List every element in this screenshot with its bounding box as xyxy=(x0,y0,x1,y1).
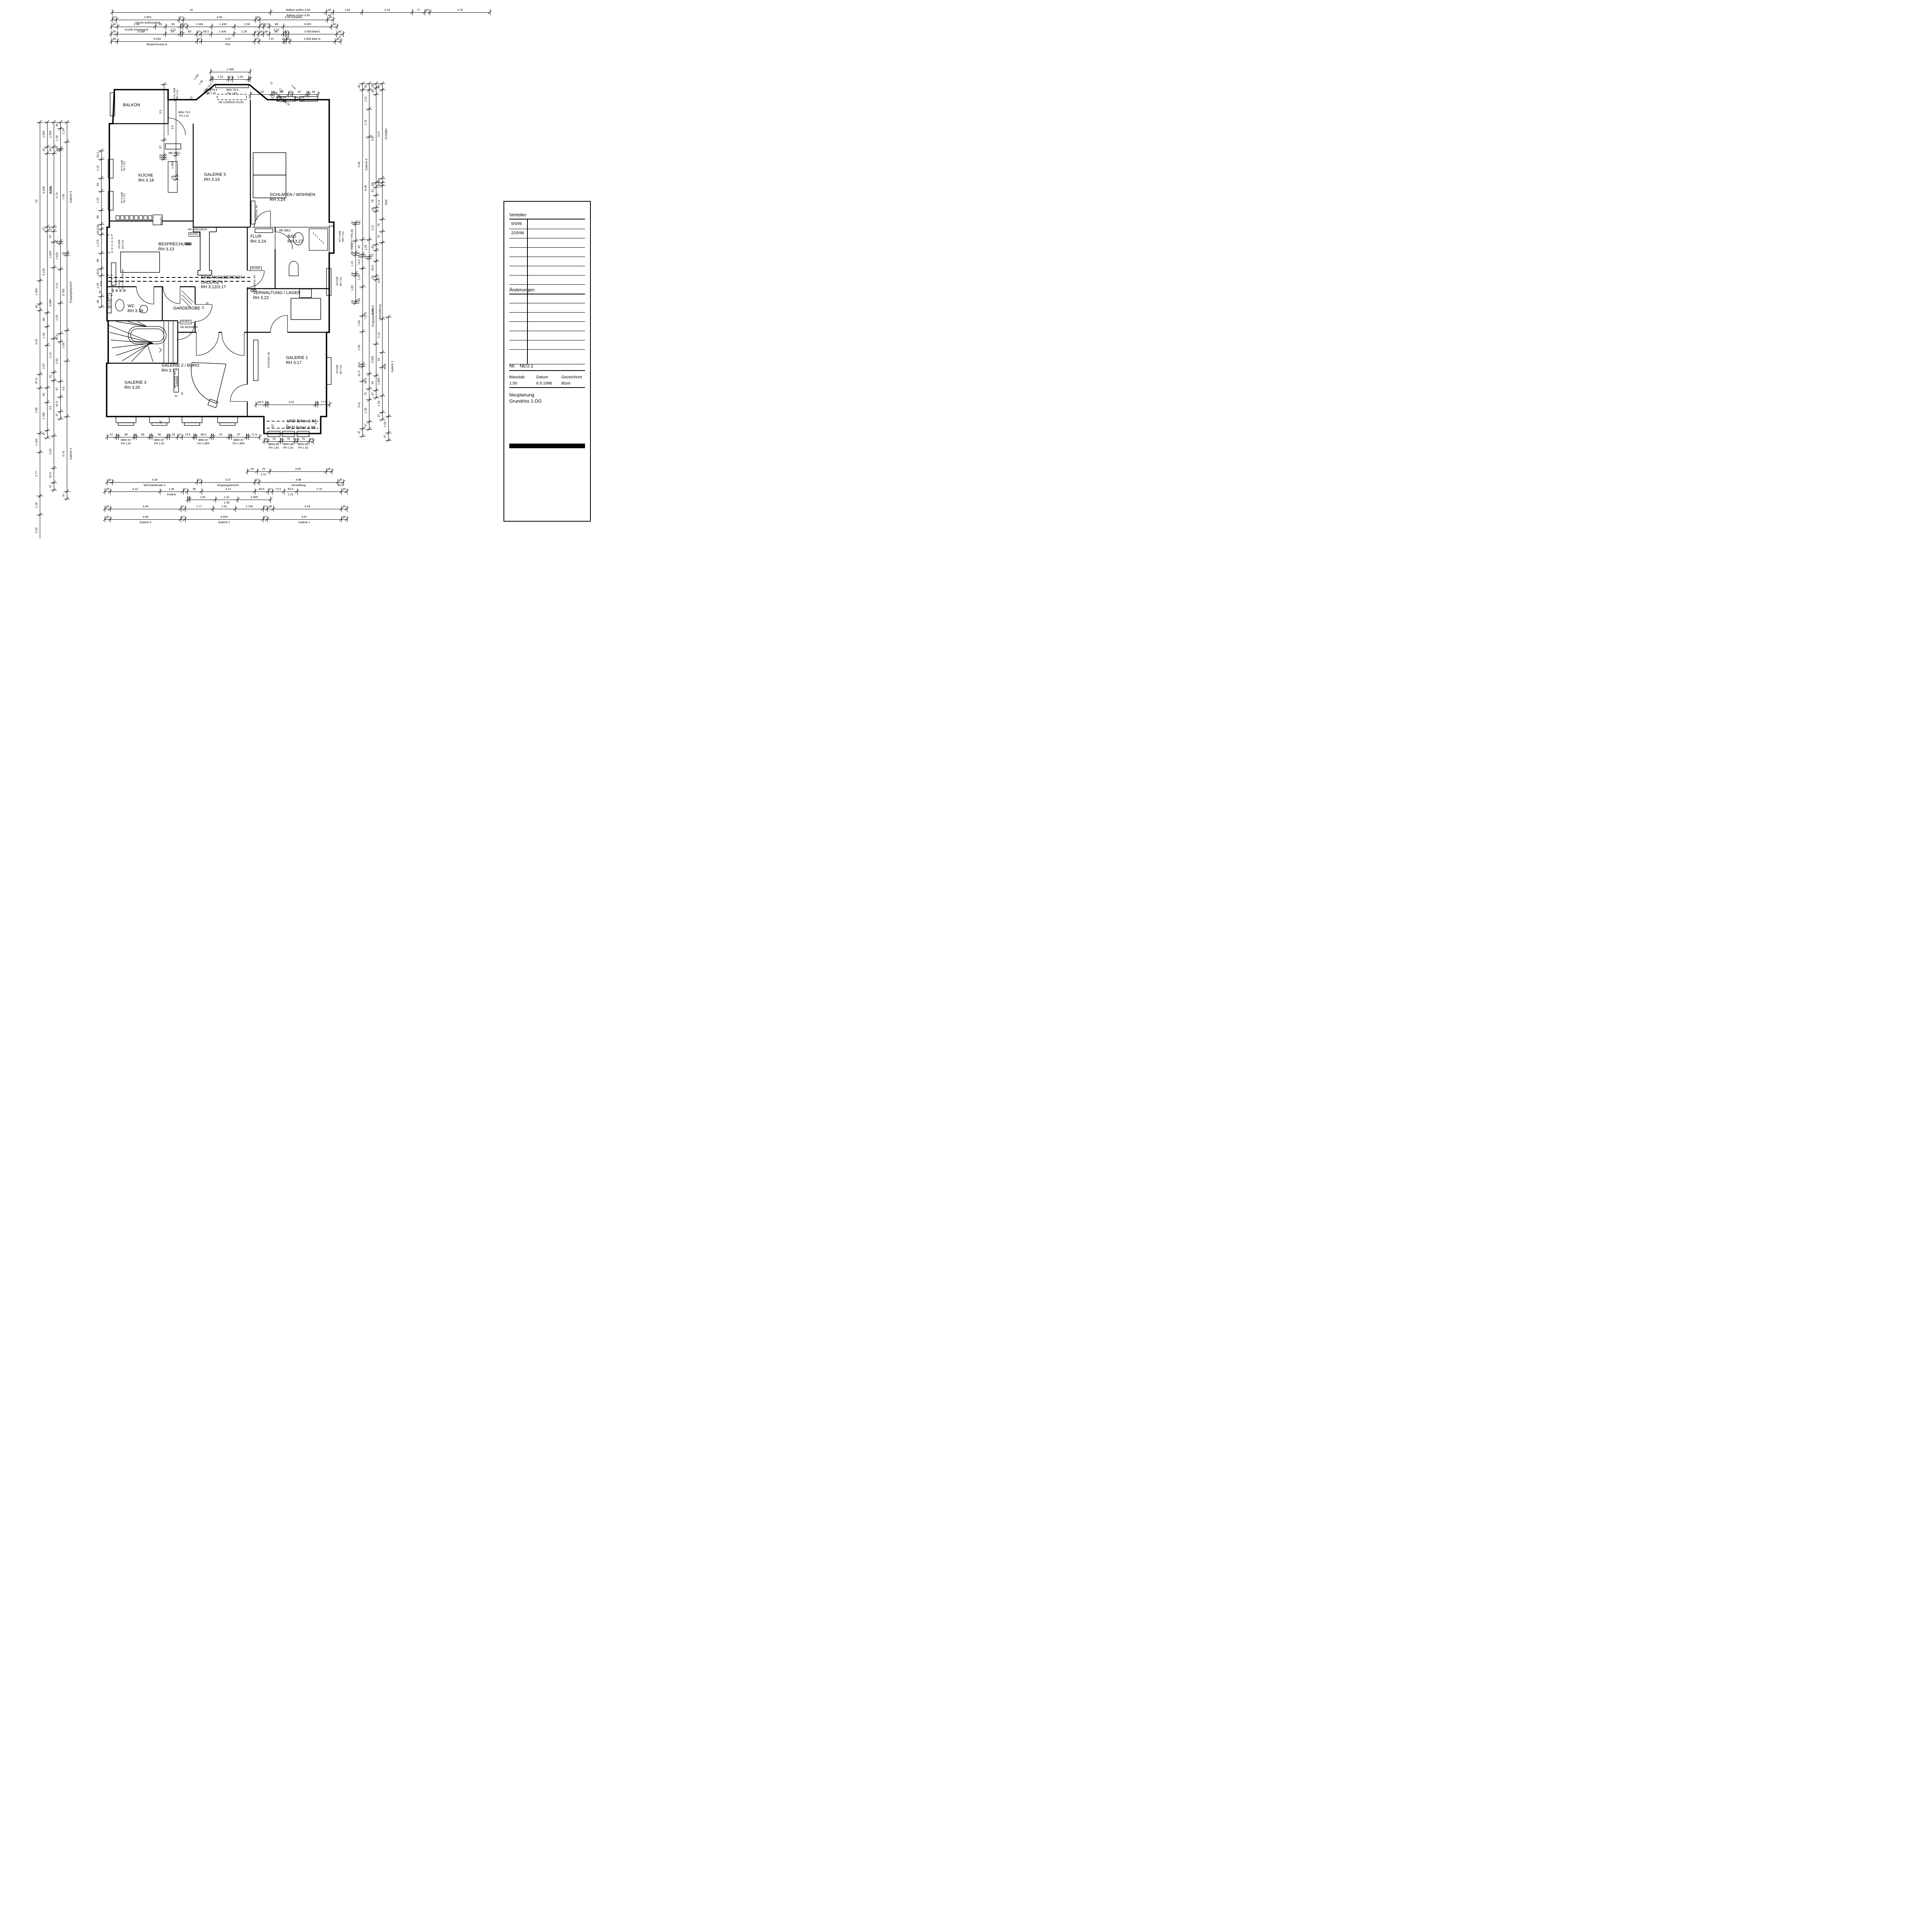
schlafen-windows-sublabel2: FH 1.85 xyxy=(286,99,313,102)
left-chain-4-value: 1.625 xyxy=(55,243,59,270)
bay-overall xyxy=(211,72,250,72)
right-chain-5 xyxy=(388,317,389,440)
left-chain-4-value: 50.5 xyxy=(55,324,59,351)
left-chain-5-value: 4.755 xyxy=(62,279,65,306)
bottom-row-2-guide xyxy=(297,488,298,495)
bottom-row-2-sublabel: 2.12 xyxy=(277,493,304,496)
right-chain-5-guide xyxy=(385,440,391,440)
left-wall-chain-guide xyxy=(98,307,104,307)
annotation-hk-76-110-20: HK 76/110/20 xyxy=(255,205,257,220)
top-row-4 xyxy=(111,34,343,34)
right-inner-chain xyxy=(355,222,356,303)
bottom-row-1-value: 5.34 xyxy=(141,478,168,481)
top-row-5-value: 5.018 xyxy=(144,37,171,41)
left-chain-3-value: 51 xyxy=(49,362,52,389)
annotation-hk-120-60-20-guss: HK 120/60/20 GUSS xyxy=(219,101,244,104)
schlafen-windows-guide xyxy=(318,91,318,97)
top-row-4-guide xyxy=(117,31,117,37)
left-chain-1-value: 87.5 xyxy=(35,367,38,395)
bottom-row-0-guide xyxy=(332,468,332,474)
balkon-window xyxy=(164,84,164,159)
right-chain-3-value: 47 xyxy=(371,380,374,407)
right-chain-2-value: 47 xyxy=(364,412,367,439)
annotation-30: 30 xyxy=(248,96,251,99)
room-label-galerie-1: GALERIE 1 RH 3.17 xyxy=(286,355,308,365)
nr-label: Nr. xyxy=(509,363,516,369)
bottom-row-2-value: 83.5 xyxy=(277,487,304,491)
room-label-galerie-3: GALERIE 3 RH 3.20 xyxy=(124,380,146,390)
bottom-row-4 xyxy=(105,509,347,509)
balkon-window-guide xyxy=(161,159,167,160)
right-chain-2-value: 1.75 xyxy=(364,109,367,136)
top-row-3-value: 1.435 xyxy=(209,22,236,26)
left-chain-2-value: 27 xyxy=(42,215,46,242)
annotation-fh-1-38: FH 1.38 xyxy=(108,299,111,308)
erker-windows xyxy=(264,441,313,442)
top-row-1-guide xyxy=(430,9,430,15)
staircase xyxy=(109,321,177,362)
top-row-5-guide xyxy=(201,38,202,44)
bottom-windows-value: 71.5 xyxy=(241,433,268,436)
verteiler-label: Verteiler xyxy=(509,213,526,218)
bay-overall-guide xyxy=(211,69,211,75)
annotation-hk-neu: HK NEU xyxy=(168,151,180,155)
annotation-fh-1-86: FH 1.86 xyxy=(339,277,342,286)
annotation-fh-1-91: FH 1.91 xyxy=(179,115,189,118)
top-row-5 xyxy=(111,41,341,42)
right-chain-2-guide xyxy=(366,429,372,430)
annotation-13: 13 xyxy=(270,97,274,100)
top-row-2 xyxy=(112,20,333,20)
galerie1-inner-value: 3.01 xyxy=(278,400,305,404)
right-chain-1-sublabel: Galerie 5 xyxy=(365,151,368,178)
left-chain-1-value: 10 xyxy=(35,188,38,215)
bottom-row-5-sublabel: Galerie 2 xyxy=(211,520,238,524)
bottom-row-4-value: 1.41 xyxy=(211,505,238,508)
top-row-4-guide xyxy=(343,31,344,37)
top-row-1-value: 34 xyxy=(413,8,440,12)
bottom-row-5-guide xyxy=(347,516,347,522)
bottom-row-5-guide xyxy=(110,516,111,522)
top-row-3-guide xyxy=(337,24,337,30)
top-row-2-value: 27 xyxy=(101,15,128,19)
left-chain-3-value: 4.635 xyxy=(49,176,52,203)
left-chain-1-guide xyxy=(37,515,43,515)
left-chain-3-value: 47 xyxy=(49,473,52,500)
top-row-5-value: 39 xyxy=(101,37,128,41)
left-chain-5-value: 7.00 xyxy=(62,184,65,211)
right-chain-4-value: 2.13 xyxy=(377,322,381,349)
annotation-brh-76-5: BRH 76.5 xyxy=(226,89,238,92)
annotation-42-5: 42.5 xyxy=(99,281,102,286)
bottom-row-2-guide xyxy=(347,488,347,495)
verteiler-date-1: 6/5/96 xyxy=(511,222,522,226)
bottom-row-1-value: 27 xyxy=(243,478,270,481)
left-chain-2-value: 47 xyxy=(42,420,46,447)
left-chain-4-value: 2.52 xyxy=(55,348,59,375)
right-chain-1 xyxy=(362,83,363,436)
annotation-hk-neu: HK NEU xyxy=(121,269,124,279)
masstab-value: 1:50 xyxy=(509,381,517,386)
bottom-row-1-value: 27 xyxy=(185,478,213,481)
interior-walls xyxy=(107,90,329,417)
annotation-hk-100-105-25: HK 100/105/25 xyxy=(188,228,207,231)
bottom-row-0-guide xyxy=(270,468,270,474)
room-label-ukd-erker-1: UKD Erker 2.84 xyxy=(287,419,316,424)
bottom-row-1-value: 35 xyxy=(327,478,354,481)
right-chain-2-value: 15 xyxy=(364,243,367,270)
datum-label: Datum xyxy=(536,375,548,379)
left-chain-5-value: 3.5 xyxy=(62,375,65,402)
right-chain-5-guide xyxy=(385,317,391,317)
bottom-row-1-guide xyxy=(259,479,259,485)
room-label-schlafen-wohnen: SCHLAFEN / WOHNEN RH 3.24 xyxy=(270,192,315,202)
left-chain-3-value: 2.03 xyxy=(49,438,52,465)
annotation-fh-1-46: FH 1.46 xyxy=(122,162,125,170)
top-row-3-guide xyxy=(283,24,284,30)
bottom-windows-sublabel2: FH 1.81 xyxy=(112,442,139,445)
bottom-row-2-value: 2.79 xyxy=(306,487,333,491)
bottom-row-1-sublabel: 20.5 xyxy=(327,483,354,487)
top-row-5-guide xyxy=(341,38,341,44)
bottom-row-3-value: 1.63 xyxy=(189,495,216,499)
balkon-window-value: 11 xyxy=(159,145,162,172)
top-row-2-value: 3.954 xyxy=(134,15,161,19)
left-chain-5-value: 15 xyxy=(62,240,65,267)
right-chain-5-sublabel: Galerie 1 xyxy=(391,353,394,380)
bottom-windows xyxy=(107,437,260,437)
bottom-row-0 xyxy=(247,471,332,472)
top-row-1 xyxy=(112,12,490,13)
left-chain-3-value: 1.625 xyxy=(49,241,52,268)
bottom-row-0-value: 35 xyxy=(315,467,342,471)
title-block: Verteiler 6/5/96 22/5/96 Änderungen Nr. … xyxy=(503,201,591,522)
bottom-row-5-value: 35 xyxy=(331,515,358,519)
annotation-15: 15 xyxy=(206,302,209,305)
left-chain-5-value: 4.74 xyxy=(62,440,65,467)
bottom-row-5-value: 27 xyxy=(169,515,196,519)
top-row-4-value: 39 xyxy=(100,30,128,33)
top-row-5-sublabel: Besprechung re. xyxy=(144,43,171,46)
left-chain-4 xyxy=(60,122,61,419)
bay-left-window xyxy=(176,100,176,179)
left-chain-1-value: 2.03 xyxy=(35,517,38,539)
room-label-besprechung: BESPRECHUNG RH 3.13 xyxy=(158,242,191,252)
floor-plan-sheet: Verteiler 6/5/96 22/5/96 Änderungen Nr. … xyxy=(0,0,618,539)
annotation-hk-115-110-21: HK 115/110/21 xyxy=(267,352,269,368)
annotation-26: 26 xyxy=(158,420,162,423)
top-row-5-guide xyxy=(117,38,118,44)
annotation-guss-: GUSS. xyxy=(180,320,191,324)
bottom-row-2-value: 35 xyxy=(331,487,358,491)
galerie1-inner-value: 77.5 xyxy=(310,400,337,404)
annotation-31: 31 xyxy=(175,395,178,398)
left-chain-5-value: 47 xyxy=(62,481,65,509)
top-row-1-guide xyxy=(362,9,362,15)
right-chain-3 xyxy=(376,83,376,398)
top-row-2-guide xyxy=(183,17,184,23)
annotation-23: 23 xyxy=(270,424,274,427)
left-chain-1-guide xyxy=(37,452,43,452)
bottom-row-1-guide xyxy=(201,479,202,485)
bottom-row-3-value: 2.065 xyxy=(241,495,268,499)
bottom-windows-sublabel: BRH 87 xyxy=(225,438,252,442)
kitchen-fixtures xyxy=(116,162,177,225)
right-chain-1-guide xyxy=(359,332,366,332)
project-line-2: Grundriss 1.OG xyxy=(509,399,542,404)
top-row-2-value: 26 xyxy=(244,15,271,19)
bottom-windows-sublabel2: FH 1.805 xyxy=(190,442,217,445)
top-row-5-sublabel: Flur xyxy=(214,43,241,46)
left-chain-5 xyxy=(67,122,67,499)
left-chain-5-guide xyxy=(64,417,70,417)
bay-overall-guide xyxy=(250,69,250,75)
room-label-verwaltung-lager: VERWALTUNG / LAGER RH 3.23 xyxy=(253,291,301,300)
annotation-guss-: GUSS. xyxy=(174,376,177,386)
bottom-row-1-value: 4.98 xyxy=(285,478,312,481)
bottom-row-1-sublabel: Verwaltung xyxy=(285,483,312,487)
bottom-row-4-guide xyxy=(273,506,274,512)
annotation-fh-1-395: FH 1.395 xyxy=(341,231,344,242)
right-chain-1-value: 91.5 xyxy=(357,360,361,387)
top-row-3-value: 36 xyxy=(321,22,348,26)
left-chain-3-value: 3.5 xyxy=(49,395,52,422)
bottom-row-5-value: 35 xyxy=(94,515,121,519)
top-row-1-value: 3.18 xyxy=(374,8,401,12)
top-row-1-guide xyxy=(270,9,271,15)
annotation-fh-1-46: FH 1.46 xyxy=(122,194,125,202)
right-chain-5-value: 6.28 xyxy=(383,353,387,380)
bottom-row-4-value: 35 xyxy=(94,505,121,508)
left-chain-1-value: 42 xyxy=(35,293,38,320)
annotation-fh-2-03: FH 2.03 xyxy=(121,240,124,249)
right-chain-3-value: 4.06 xyxy=(371,298,374,325)
annotation-brh-83: BRH 83 xyxy=(335,277,338,286)
bottom-row-4-guide xyxy=(347,506,347,512)
schlafen-windows-value: 59 xyxy=(300,90,327,94)
left-chain-4-value: 5.74 xyxy=(55,182,59,209)
annotation-therm-: THERM. xyxy=(159,216,162,225)
project-line-1: Neuplanung xyxy=(509,393,534,398)
bottom-row-2-value: 3.37 xyxy=(215,487,242,491)
bottom-row-1 xyxy=(107,482,344,483)
bottom-row-5-value: 27 xyxy=(252,515,279,519)
bottom-row-2-value: 90 xyxy=(181,487,208,491)
right-chain-2-value: 6.49 xyxy=(364,174,367,201)
top-row-5-value: 2.855 Bad re. xyxy=(299,37,326,41)
title-block-bar xyxy=(509,444,585,448)
bottom-row-4-value: 38 xyxy=(257,505,284,508)
room-label-balkon: BALKON xyxy=(123,103,140,108)
annotation-fh-1-90: FH 1.90 xyxy=(227,92,237,95)
top-row-5-value: 3.37 xyxy=(214,37,241,41)
top-row-2-value: 27 xyxy=(168,15,195,19)
right-chain-1-value: 47 xyxy=(357,419,361,446)
verteiler-date-2: 22/5/96 xyxy=(511,231,524,236)
annotation-brh-83: BRH 83 xyxy=(117,240,120,248)
top-row-2-guide xyxy=(260,17,260,23)
balkon-window-value: 3.5 xyxy=(159,98,162,125)
bottom-row-5-sublabel: Galerie 1 xyxy=(291,520,318,524)
left-chain-3-guide xyxy=(51,436,57,436)
bottom-row-0-sublabel: 2.12 xyxy=(250,473,277,476)
datum-value: 6.5.1996 xyxy=(536,381,552,386)
right-chain-1-value: 40 xyxy=(357,73,361,100)
room-label-eingangsbereich-galerie-4: EINGANGSBEREICH / GALERIE 4 RH 3.12/3.17 xyxy=(201,275,245,290)
right-chain-3-value: 24 xyxy=(371,264,374,291)
bottom-windows-sublabel2: FH 1.805 xyxy=(225,442,252,445)
left-chain-3-value: 4.485 xyxy=(49,289,52,316)
bay-windows-guide xyxy=(250,76,250,82)
bed xyxy=(253,153,286,198)
right-inner-chain-guide xyxy=(352,303,359,304)
top-row-5-value: 27 xyxy=(185,37,213,41)
left-chain-2-value: 42 xyxy=(42,136,46,163)
right-chain-3-value: 5.57 xyxy=(371,125,374,152)
bottom-row-4-value: 1.77 xyxy=(185,505,213,508)
bottom-row-2-guide xyxy=(202,488,202,495)
left-chain-5-value: 1.93 xyxy=(62,332,65,359)
left-chain-5-guide xyxy=(64,255,70,255)
top-row-5-value: 35 xyxy=(324,37,351,41)
left-chain-4-guide xyxy=(57,419,63,419)
top-row-2-value: 4.56 xyxy=(206,15,233,19)
erker-windows-guide xyxy=(313,438,313,444)
galerie1-inner-guide xyxy=(330,401,330,408)
bay-left-window-value: 3.5 xyxy=(171,114,174,141)
left-chain-4-value: 2.13 xyxy=(55,272,59,299)
bottom-row-4-value: 35 xyxy=(331,505,358,508)
bottom-row-2-value: 35 xyxy=(94,487,121,491)
right-chain-4-value: 70 xyxy=(377,223,381,250)
left-chain-3-guide xyxy=(51,490,57,490)
left-chain-5-sublabel: Eingangsbereich xyxy=(69,279,73,306)
left-chain-2-value: 2.67 xyxy=(42,352,46,379)
gezeichnet-value: Bizer xyxy=(561,381,571,386)
left-chain-4-value: 10.5 xyxy=(55,136,59,163)
left-chain-1-value: 2.77 xyxy=(35,460,38,487)
bottom-row-1-sublabel: Eingangsbereich xyxy=(214,483,241,487)
top-row-1-value: 10 xyxy=(178,8,205,12)
left-chain-4-guide xyxy=(57,150,63,150)
left-chain-3-value: 42 xyxy=(49,136,52,163)
right-chain-3-value: 40 xyxy=(371,77,374,104)
balkon-window-guide xyxy=(161,84,167,85)
bottom-row-5-guide xyxy=(267,516,268,522)
radiators xyxy=(111,94,273,392)
right-chain-1-guide xyxy=(359,287,366,287)
room-label-kueche: KÜCHE RH 3.18 xyxy=(138,173,154,183)
bottom-row-4-value: 4.29 xyxy=(294,505,321,508)
room-label-wc: WC RH 3.19 xyxy=(128,304,143,313)
masstab-label: Masstab xyxy=(509,375,525,379)
left-chain-5-guide xyxy=(64,142,70,142)
annotation-brh-81: BRH 81 xyxy=(335,365,338,374)
room-label-galerie-2-buero: GALERIE 2 / BÜRO RH 3.17 xyxy=(162,363,199,373)
room-label-garderobe: GARDEROBE xyxy=(173,306,200,311)
annotation-66: 66 xyxy=(98,291,101,293)
annotation-22: 22 xyxy=(201,306,204,309)
left-chain-2-value: 5.155 xyxy=(42,258,46,285)
bay-windows-value: 11 xyxy=(236,75,263,78)
top-row-4-value: 17 xyxy=(273,30,300,33)
bottom-windows-sublabel2: FH 1.81 xyxy=(146,442,173,445)
right-chain-4-guide xyxy=(379,319,385,319)
left-chain-2-value: 4.635 xyxy=(42,176,46,203)
bottom-row-5 xyxy=(105,519,347,520)
right-chain-5-value: 47 xyxy=(383,423,387,450)
top-row-4-value: 40 xyxy=(327,30,354,33)
top-row-3-value: 1.545 xyxy=(186,22,213,26)
bottom-row-3-guide xyxy=(238,497,238,503)
right-chain-4-value: 40 xyxy=(377,73,381,100)
left-chain-1-value: 4.03 xyxy=(35,328,38,355)
top-row-4-value: 3.038 xyxy=(128,30,155,33)
bottom-row-1-sublabel: WC/Garderobe li. xyxy=(141,483,168,487)
bottom-row-5-guide xyxy=(185,516,185,522)
left-chain-5-value: 1.24 xyxy=(62,118,65,145)
room-label-galerie-5: GALERIE 5 RH 3.19 xyxy=(204,172,226,182)
left-chain-5-guide xyxy=(64,330,70,331)
top-row-3 xyxy=(111,27,337,27)
top-row-1-value: 3.79 xyxy=(446,8,473,12)
left-chain-4-guide xyxy=(57,269,63,269)
right-chain-4-sublabel: Bad xyxy=(384,189,388,216)
left-chain-5-sublabel: Galerie 5 xyxy=(69,184,73,211)
annotation-brh-83: BRH 83 xyxy=(117,280,120,289)
bottom-row-0-value: 79 xyxy=(250,467,277,471)
top-row-1-value: Balkon außen 3.50 xyxy=(285,8,312,12)
left-chain-2 xyxy=(47,122,48,438)
right-chain-2-value: 7.275 xyxy=(364,303,367,330)
galerie1-inner-value: 14 xyxy=(253,400,280,404)
bay-left-window-value: 23 xyxy=(171,164,174,191)
bottom-row-0-value: 3.56 xyxy=(284,467,311,471)
bottom-row-1-guide xyxy=(112,479,113,485)
bottom-row-4-guide xyxy=(110,506,111,512)
annotation-fh-1-86: FH 1.86 xyxy=(339,365,342,374)
annotation-fh-1-91: FH 1.91 xyxy=(175,90,178,99)
top-row-1-guide xyxy=(333,9,333,15)
top-row-3-value: 3.025 xyxy=(294,22,321,26)
bottom-row-5-value: 4.45 xyxy=(132,515,159,519)
bay-overall-value: 2.495 xyxy=(217,68,244,71)
annotation-guss-: GUSS. xyxy=(189,232,200,236)
right-chain-4-guide xyxy=(379,242,385,243)
annotation-hk-70-107-23: HK 70/107/23 xyxy=(253,275,255,291)
bay-left-window-guide xyxy=(173,179,179,180)
annotation-fh-2-03: FH 2.03 xyxy=(121,280,124,289)
top-row-1-guide xyxy=(490,9,490,15)
bottom-row-4-value: 4.45 xyxy=(132,505,159,508)
bottom-row-2-guide xyxy=(110,488,111,495)
right-chain-3-sublabel: Verwaltung xyxy=(378,298,382,325)
nr-value: NEU.1 xyxy=(520,364,533,369)
bottom-row-3 xyxy=(187,500,270,500)
left-chain-1 xyxy=(40,122,40,539)
bottom-row-1-guide xyxy=(344,479,344,485)
annotation-brh-76-5: BRH 76.5 xyxy=(172,88,175,99)
top-row-2-value: 36 xyxy=(317,15,344,19)
bottom-row-2-value: 3.14 xyxy=(122,487,149,491)
aenderungen-label: Änderungen xyxy=(509,287,534,293)
top-row-4-value: 3.065 Bad li. xyxy=(299,30,326,33)
right-chain-4-guide xyxy=(379,185,385,186)
left-chain-4-value: 47 xyxy=(55,401,59,429)
annotation-brh-1-26: BRH 1.26 xyxy=(338,231,340,242)
left-chain-5-sublabel: Galerie 2 xyxy=(69,440,73,467)
right-chain-4-value: 4.81 xyxy=(377,267,381,294)
